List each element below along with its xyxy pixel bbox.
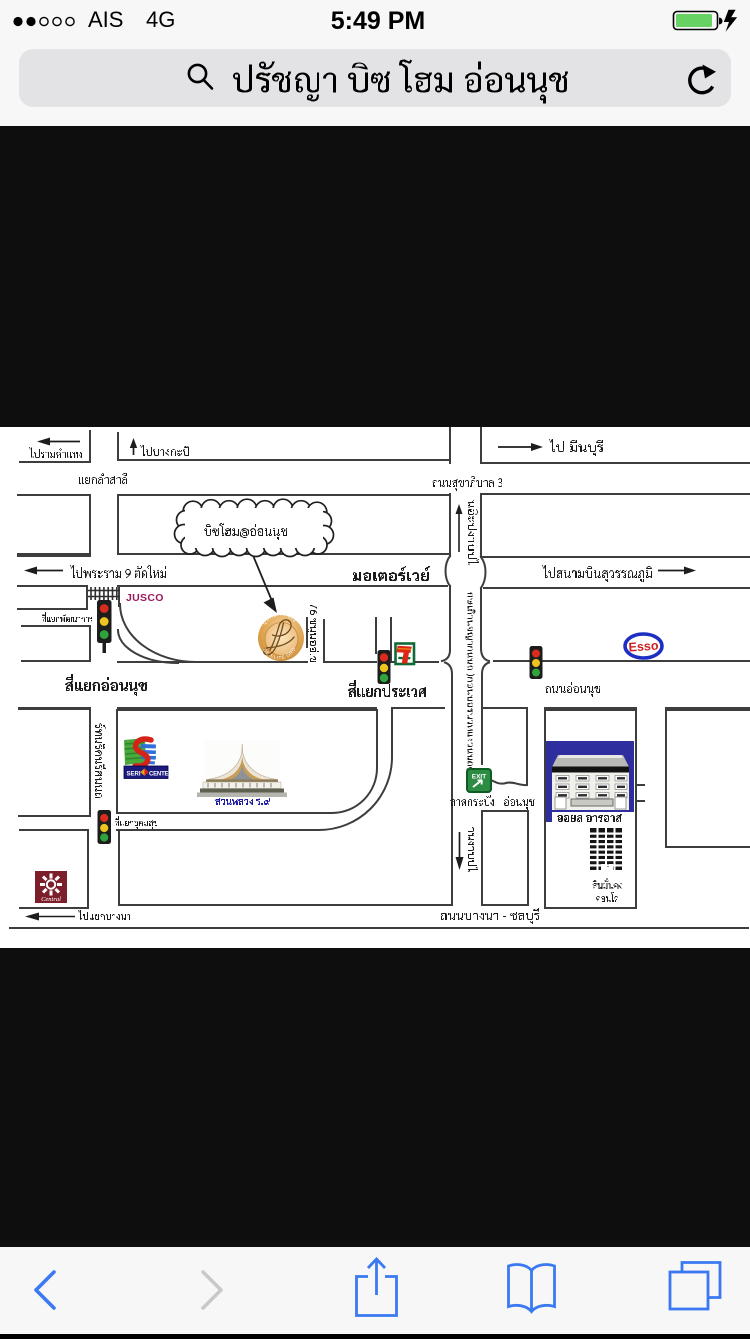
- svg-text:Central: Central: [41, 896, 61, 903]
- svg-text:SERI: SERI: [127, 771, 141, 777]
- svg-text:JUSCO: JUSCO: [126, 592, 164, 604]
- svg-text:CENTER: CENTER: [149, 771, 173, 777]
- svg-text:Esso: Esso: [628, 638, 659, 654]
